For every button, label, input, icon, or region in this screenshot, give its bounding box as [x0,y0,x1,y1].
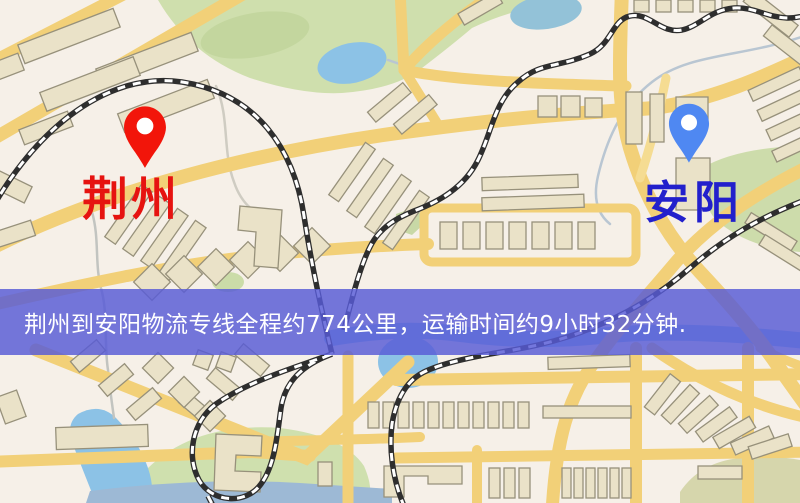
destination-pin-icon[interactable] [667,101,711,166]
origin-pin-shape [124,106,166,168]
route-info-text: 荆州到安阳物流专线全程约774公里，运输时间约9小时32分钟. [24,305,687,339]
destination-city-label: 安阳 [644,180,744,225]
map-screenshot: 荆州 安阳 荆州到安阳物流专线全程约774公里，运输时间约9小时32分钟. [0,0,800,503]
destination-pin-hole [681,114,697,130]
origin-pin-icon[interactable] [122,103,168,172]
destination-pin-shape [669,104,709,163]
route-info-banner: 荆州到安阳物流专线全程约774公里，运输时间约9小时32分钟. [0,289,800,355]
origin-city-label: 荆州 [82,176,180,222]
origin-pin-hole [137,118,154,135]
map-background [0,0,800,503]
